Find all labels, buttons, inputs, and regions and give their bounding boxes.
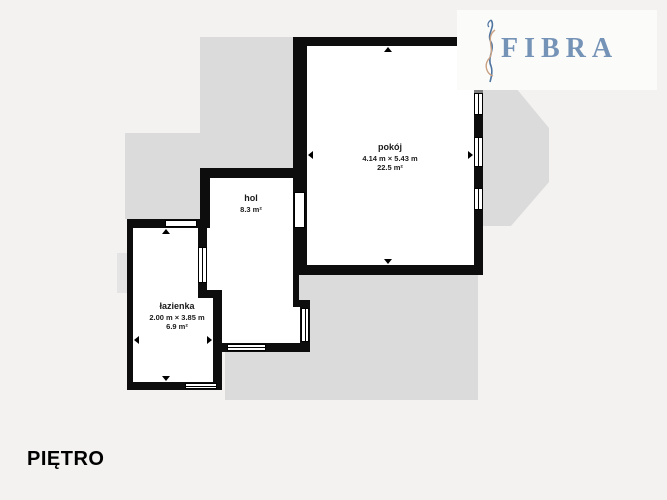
wall-pokoj-bottom — [293, 265, 483, 275]
floor-plan-page: pokój 4.14 m × 5.43 m 22.5 m² hol 8.3 m²… — [0, 0, 667, 500]
dim-arrow-lazienka-down — [162, 376, 170, 381]
window-lazienka-bottom — [185, 383, 217, 389]
wall-pokoj-right-2 — [474, 167, 483, 188]
floor-title: PIĘTRO — [27, 448, 104, 471]
window-hol-right — [301, 308, 309, 342]
dim-arrow-lazienka-up — [162, 229, 170, 234]
label-hol-area: 8.3 m² — [240, 205, 262, 215]
wall-lazienka-left — [127, 219, 133, 390]
window-lazienka-right — [198, 247, 207, 283]
wall-hol-right-jut — [293, 300, 310, 307]
window-hol-bottom — [227, 344, 266, 351]
roof-tab-left — [117, 253, 127, 293]
roof-area-bottom — [298, 272, 478, 400]
label-lazienka-area: 6.9 m² — [149, 322, 204, 332]
label-pokoj-area: 22.5 m² — [362, 163, 417, 173]
roof-bay-right — [481, 82, 549, 226]
wall-hol-top — [200, 168, 293, 178]
wall-pokoj-left — [293, 37, 307, 265]
window-pokoj-3 — [474, 188, 483, 210]
dim-arrow-lazienka-right — [207, 336, 212, 344]
logo-text: FIBRA — [501, 33, 618, 65]
label-lazienka: łazienka 2.00 m × 3.85 m 6.9 m² — [149, 301, 204, 332]
label-lazienka-dimensions: 2.00 m × 3.85 m — [149, 313, 204, 323]
roof-area-left — [125, 133, 203, 219]
window-pokoj-1 — [474, 93, 483, 115]
room-hol-floor-ext — [293, 307, 300, 343]
dim-arrow-pokoj-down — [384, 259, 392, 264]
wall-below-pokoj — [293, 275, 299, 300]
fibra-logo-icon — [480, 18, 502, 84]
label-pokoj-name: pokój — [362, 142, 417, 154]
window-pokoj-2 — [474, 137, 483, 167]
wall-pokoj-right-1 — [474, 115, 483, 137]
wall-pokoj-top — [293, 37, 457, 46]
dim-arrow-pokoj-left — [308, 151, 313, 159]
label-pokoj: pokój 4.14 m × 5.43 m 22.5 m² — [362, 142, 417, 173]
roof-area-bottom-left — [225, 352, 298, 400]
dim-arrow-lazienka-left — [134, 336, 139, 344]
logo-box: FIBRA — [457, 10, 657, 90]
door-lazienka — [165, 220, 197, 227]
door-pokoj — [294, 192, 305, 228]
label-hol: hol 8.3 m² — [240, 193, 262, 214]
label-hol-name: hol — [240, 193, 262, 205]
label-pokoj-dimensions: 4.14 m × 5.43 m — [362, 154, 417, 164]
dim-arrow-pokoj-up — [384, 47, 392, 52]
dim-arrow-pokoj-right — [468, 151, 473, 159]
wall-lazienka-right-lower — [213, 290, 222, 390]
roof-area-top — [200, 37, 298, 170]
label-lazienka-name: łazienka — [149, 301, 204, 313]
